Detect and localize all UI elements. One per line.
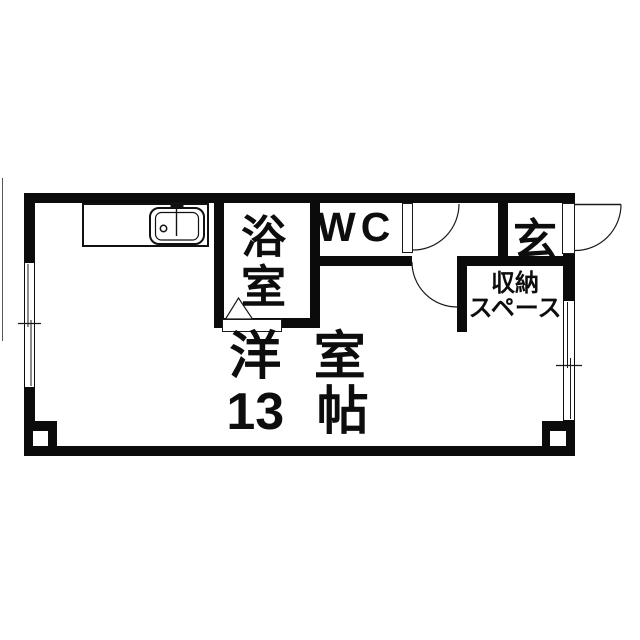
storage-label-line2: スペース bbox=[452, 296, 578, 321]
floor-plan: 浴室 WC 玄 収納 スペース 洋 室 13 帖 bbox=[0, 0, 640, 640]
entrance-door-arc bbox=[575, 205, 621, 251]
living-room-name: 洋 室 bbox=[175, 330, 420, 385]
kitchen-sink-icon bbox=[150, 202, 204, 244]
hall-door-arc-icon bbox=[412, 262, 457, 307]
bathroom-label: 浴室 bbox=[237, 213, 282, 313]
entrance-door-icon bbox=[575, 205, 621, 251]
window-left-sashes bbox=[18, 264, 41, 386]
entrance-label: 玄 bbox=[506, 204, 564, 268]
faucet-icon bbox=[171, 202, 184, 209]
living-room-label: 洋 室 13 帖 bbox=[175, 330, 420, 440]
sink-drain bbox=[160, 225, 166, 231]
toilet-label: WC bbox=[317, 204, 395, 251]
living-room-area: 13 帖 bbox=[175, 385, 420, 440]
storage-label: 収納 スペース bbox=[452, 271, 578, 321]
wc-door-arc-icon bbox=[413, 204, 459, 250]
storage-label-line1: 収納 bbox=[452, 271, 578, 296]
